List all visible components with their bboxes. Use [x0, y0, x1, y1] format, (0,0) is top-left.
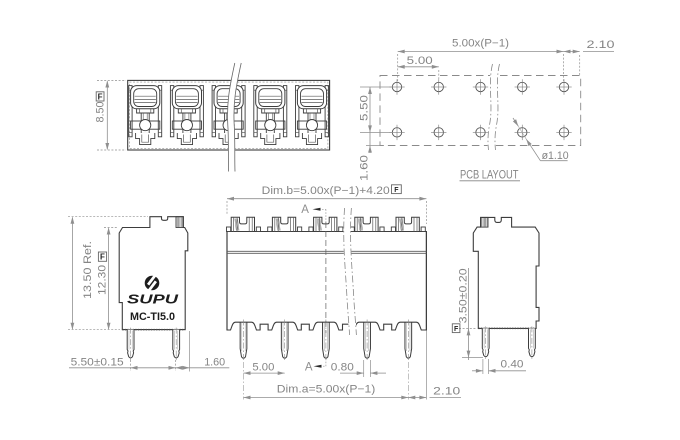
svg-text:Dim.b=5.00x(P−1)+4.20: Dim.b=5.00x(P−1)+4.20 [262, 185, 390, 197]
svg-text:2.10: 2.10 [587, 39, 615, 51]
svg-text:5.00x(P−1): 5.00x(P−1) [452, 38, 509, 50]
svg-text:5.00: 5.00 [407, 55, 433, 67]
svg-text:Dim.a=5.00x(P−1): Dim.a=5.00x(P−1) [277, 384, 376, 396]
svg-text:A: A [305, 361, 313, 373]
svg-text:5.00: 5.00 [252, 362, 274, 374]
svg-text:MC-TI5.0: MC-TI5.0 [130, 311, 175, 323]
svg-text:F: F [454, 326, 459, 333]
svg-text:5.50±0.15: 5.50±0.15 [71, 356, 124, 368]
svg-text:ø1.10: ø1.10 [542, 150, 569, 162]
svg-text:SUPU: SUPU [127, 293, 179, 307]
svg-text:2.10: 2.10 [433, 385, 460, 397]
svg-text:F: F [98, 92, 103, 101]
svg-text:1.60: 1.60 [204, 356, 225, 368]
svg-text:1.60: 1.60 [358, 155, 370, 181]
svg-text:3.50±0.20: 3.50±0.20 [457, 268, 469, 323]
svg-text:5.50: 5.50 [358, 95, 370, 121]
svg-text:F: F [100, 253, 105, 262]
svg-text:0.40: 0.40 [501, 359, 524, 371]
svg-text:8.50: 8.50 [94, 102, 106, 123]
svg-text:A: A [301, 204, 309, 216]
svg-text:12.30: 12.30 [96, 265, 108, 295]
svg-text:F: F [394, 187, 399, 194]
svg-text:PCB LAYOUT: PCB LAYOUT [460, 169, 519, 181]
svg-text:13.50 Ref.: 13.50 Ref. [82, 241, 94, 299]
svg-text:0.80: 0.80 [331, 362, 354, 374]
